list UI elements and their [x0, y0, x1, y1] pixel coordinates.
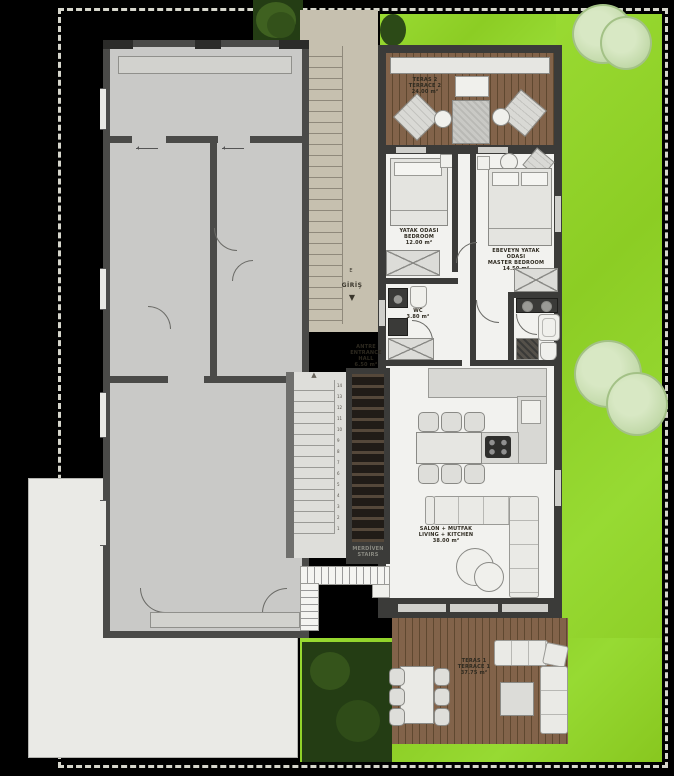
neighbor-wall — [210, 143, 217, 383]
sofa-armrest — [425, 496, 435, 525]
living-room-label: SALON + MUTFAK LIVING + KITCHEN 38.00 m² — [400, 526, 492, 544]
cooktop — [485, 436, 511, 458]
stair-direction-arrow-icon: ▲ — [306, 372, 322, 379]
outdoor-chair — [389, 708, 405, 726]
interior-wall — [378, 278, 458, 284]
dining-chair — [418, 412, 439, 432]
outdoor-chair — [434, 668, 450, 686]
wardrobe — [388, 338, 434, 360]
toilet — [410, 286, 427, 308]
door-opening — [168, 376, 204, 383]
wardrobe — [386, 250, 440, 276]
pillow — [492, 172, 519, 186]
bathtub-inner — [542, 318, 556, 337]
bed — [488, 168, 552, 246]
entry-door-opening — [379, 300, 385, 326]
terrace1-label: TERAS 1 TERRACE 1 37.75 m² — [450, 658, 498, 676]
terrace2-coffee-table — [452, 100, 490, 144]
shower — [516, 338, 539, 360]
blanket-line — [489, 228, 551, 229]
toilet — [540, 342, 557, 361]
terrace2-bench — [390, 57, 550, 74]
door-opening — [132, 136, 166, 143]
outdoor-chair — [434, 688, 450, 706]
side-table — [492, 108, 510, 126]
sliding-door — [450, 604, 498, 612]
terrace2-ottoman — [455, 76, 489, 97]
interior-wall — [378, 360, 462, 366]
terrace2-label: TERAS 2 TERRACE 2 24.00 m² — [396, 77, 454, 95]
dining-chair — [441, 464, 462, 484]
bathtub — [538, 314, 560, 341]
entry-walkway: E GİRİŞ ▼ — [300, 10, 378, 332]
entrance-arrow-icon: ▼ — [344, 294, 360, 302]
window-icon — [555, 196, 561, 232]
outdoor-sofa-chaise — [540, 666, 568, 734]
sofa — [433, 496, 513, 525]
wardrobe — [514, 268, 558, 292]
outdoor-dining-table — [400, 666, 434, 724]
entry-steps-vertical — [300, 583, 319, 631]
pillow — [521, 172, 548, 186]
tree-icon — [600, 16, 652, 70]
neighbor-unit-floor — [110, 47, 302, 631]
dining-chair — [441, 412, 462, 432]
window-icon — [100, 392, 106, 438]
kitchen-counter-top — [428, 368, 547, 398]
tree-icon — [606, 372, 668, 436]
outdoor-stair: ▲ 14 13 12 11 10 9 8 7 6 5 4 3 2 1 — [294, 372, 346, 558]
bathroom-vanity — [516, 298, 558, 313]
stair-annex-walls — [346, 368, 390, 564]
wall-segment — [279, 40, 309, 49]
interior-wall — [470, 360, 562, 366]
dining-chair — [418, 464, 439, 484]
stairs-label: MERDİVEN STAIRS — [346, 546, 390, 558]
sofa-chaise — [509, 496, 539, 598]
neighbor-sideboard — [150, 612, 300, 628]
side-table — [434, 110, 452, 128]
window-icon — [100, 268, 106, 310]
bush-icon — [310, 652, 350, 690]
interior-stair-treads — [352, 374, 384, 542]
dining-chair — [464, 464, 485, 484]
neighbor-closet — [118, 56, 292, 74]
outdoor-coffee-table — [500, 682, 534, 716]
pillow — [394, 162, 442, 176]
outdoor-chair — [389, 668, 405, 686]
door-opening — [218, 136, 250, 143]
nightstand — [477, 156, 490, 170]
window-icon — [555, 470, 561, 506]
outdoor-chair — [434, 708, 450, 726]
outdoor-sofa — [494, 640, 548, 666]
sliding-door — [398, 604, 446, 612]
sink-cabinet — [388, 318, 408, 336]
interior-wall — [508, 292, 514, 362]
window-icon — [100, 500, 106, 546]
bush-icon — [267, 12, 295, 38]
dining-chair — [464, 412, 485, 432]
sliding-door — [502, 604, 548, 612]
outdoor-chair — [389, 688, 405, 706]
window-icon — [396, 147, 426, 153]
site-plan: E GİRİŞ ▼ ▲ 14 13 12 11 10 9 8 7 6 5 — [0, 0, 674, 776]
washing-machine — [388, 288, 408, 308]
hedge-top — [253, 0, 303, 44]
hedge-bottom — [302, 642, 392, 762]
entrance-grid-letter: E — [344, 268, 358, 274]
bush-icon — [336, 700, 380, 742]
dining-table — [416, 432, 482, 464]
sink — [522, 301, 533, 312]
hall-label: ANTRE ENTRANCE HALL 6.50 m² — [342, 344, 390, 368]
neighbor-unit — [103, 40, 309, 638]
hedge-small — [380, 14, 406, 46]
outdoor-stair-treads — [294, 380, 335, 534]
pouf — [474, 562, 504, 592]
wall-segment — [103, 40, 133, 49]
bed — [390, 158, 448, 226]
door-swing-arrow — [136, 148, 158, 149]
bedroom2-label: YATAK ODASI BEDROOM 12.00 m² — [390, 228, 448, 246]
neighbor-wall — [110, 376, 303, 383]
wall-segment — [195, 40, 221, 49]
blanket-line — [391, 210, 447, 211]
outdoor-sofa-corner — [542, 642, 569, 668]
door-swing-arrow — [222, 148, 244, 149]
window-icon — [478, 147, 508, 153]
window-icon — [100, 88, 106, 130]
kitchen-sink — [521, 400, 541, 424]
stair-side-wall — [286, 372, 294, 558]
sink — [541, 301, 552, 312]
entrance-label: GİRİŞ — [334, 282, 370, 289]
stair-step-numbers: 14 13 12 11 10 9 8 7 6 5 4 3 2 1 — [337, 380, 346, 540]
